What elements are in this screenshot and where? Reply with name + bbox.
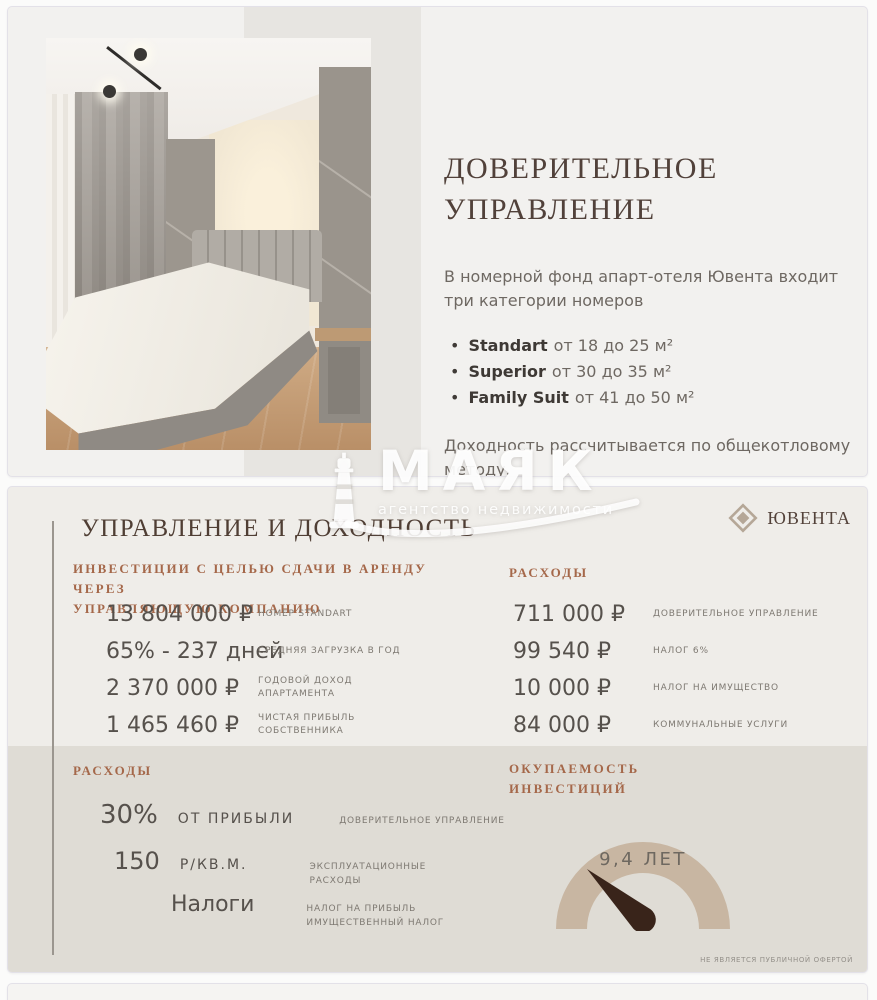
cost-label: ДОВЕРИТЕЛЬНОЕ УПРАВЛЕНИЕ (339, 815, 505, 829)
stat-label: ДОВЕРИТЕЛЬНОЕ УПРАВЛЕНИЕ (653, 608, 819, 621)
stat-row: 84 000 ₽ КОММУНАЛЬНЫЕ УСЛУГИ (513, 710, 863, 740)
vertical-accent-line (52, 521, 54, 955)
stat-row: 1 465 460 ₽ ЧИСТАЯ ПРИБЫЛЬ СОБСТВЕННИКА (106, 710, 496, 740)
stat-label: ГОДОВОЙ ДОХОД АПАРТАМЕНТА (258, 675, 352, 700)
bullet-icon: • (450, 385, 459, 411)
slide1-title: ДОВЕРИТЕЛЬНОЕ УПРАВЛЕНИЕ (444, 148, 856, 231)
cost-unit: ОТ ПРИБЫЛИ (178, 811, 294, 827)
stat-row: 13 804 000 ₽ НОМЕР STANDART (106, 599, 496, 629)
slide1-intro: В номерной фонд апарт-отеля Ювента входи… (444, 265, 856, 313)
list-item: • Superior от 30 до 35 м² (444, 359, 856, 385)
stat-label: НАЛОГ НА ИМУЩЕСТВО (653, 682, 779, 695)
presentation-page: ДОВЕРИТЕЛЬНОЕ УПРАВЛЕНИЕ В номерной фонд… (0, 0, 877, 1000)
cost-value: Налоги (171, 892, 254, 917)
cost-value: 30% (100, 800, 158, 830)
stat-value: 2 370 000 ₽ (106, 676, 258, 701)
stat-value: 84 000 ₽ (513, 713, 653, 738)
bullet-icon: • (450, 359, 459, 385)
expenses-stats: 711 000 ₽ ДОВЕРИТЕЛЬНОЕ УПРАВЛЕНИЕ 99 54… (513, 599, 863, 747)
diamond-icon (728, 503, 758, 533)
stat-row: 10 000 ₽ НАЛОГ НА ИМУЩЕСТВО (513, 673, 863, 703)
payback-section-title: ОКУПАЕМОСТЬ ИНВЕСТИЦИЙ (509, 759, 639, 799)
slide-management-profit: ЮВЕНТА УПРАВЛЕНИЕ И ДОХОДНОСТЬ ИНВЕСТИЦИ… (7, 486, 868, 973)
stat-label: НАЛОГ 6% (653, 645, 709, 658)
photo-desk (319, 328, 371, 423)
room-category-list: • Standart от 18 до 25 м² • Superior от … (444, 333, 856, 411)
costs-section-title: РАСХОДЫ (73, 761, 152, 781)
cost-value: 150 (114, 847, 160, 875)
list-item: • Standart от 18 до 25 м² (444, 333, 856, 359)
stat-value: 10 000 ₽ (513, 676, 653, 701)
invest-stats: 13 804 000 ₽ НОМЕР STANDART 65% - 237 дн… (106, 599, 496, 747)
stat-value: 711 000 ₽ (513, 602, 653, 627)
stat-row: 2 370 000 ₽ ГОДОВОЙ ДОХОД АПАРТАМЕНТА (106, 673, 496, 703)
bedroom-photo (46, 38, 371, 450)
stat-value: 65% - 237 дней (106, 639, 258, 664)
stat-label: НОМЕР STANDART (258, 608, 352, 621)
brand-name: ЮВЕНТА (767, 508, 851, 529)
brand-logo: ЮВЕНТА (728, 503, 851, 533)
stat-row: 65% - 237 дней СРЕДНЯЯ ЗАГРУЗКА В ГОД (106, 636, 496, 666)
cost-row: 30% ОТ ПРИБЫЛИ ДОВЕРИТЕЛЬНОЕ УПРАВЛЕНИЕ (100, 800, 505, 830)
list-item: • Family Suit от 41 до 50 м² (444, 385, 856, 411)
cost-label: ЭКСПЛУАТАЦИОННЫЕ РАСХОДЫ (310, 861, 427, 888)
cost-unit: Р/КВ.М. (180, 857, 248, 873)
cost-row: Налоги НАЛОГ НА ПРИБЫЛЬ ИМУЩЕСТВЕННЫЙ НА… (171, 892, 444, 930)
gauge-needle (587, 869, 656, 931)
cost-row: 150 Р/КВ.М. ЭКСПЛУАТАЦИОННЫЕ РАСХОДЫ (114, 847, 426, 888)
slide-trust-management: ДОВЕРИТЕЛЬНОЕ УПРАВЛЕНИЕ В номерной фонд… (7, 6, 868, 477)
bullet-icon: • (450, 333, 459, 359)
stat-label: ЧИСТАЯ ПРИБЫЛЬ СОБСТВЕННИКА (258, 712, 355, 737)
disclaimer-text: НЕ ЯВЛЯЕТСЯ ПУБЛИЧНОЙ ОФЕРТОЙ (700, 956, 853, 964)
stat-row: 99 540 ₽ НАЛОГ 6% (513, 636, 863, 666)
stat-value: 99 540 ₽ (513, 639, 653, 664)
stat-value: 13 804 000 ₽ (106, 602, 258, 627)
slide2-heading: УПРАВЛЕНИЕ И ДОХОДНОСТЬ (81, 515, 476, 543)
slide1-note: Доходность рассчитывается по общекотлово… (444, 434, 856, 478)
next-slide-edge (7, 983, 868, 1000)
stat-value: 1 465 460 ₽ (106, 713, 258, 738)
gauge-value: 9,4 ЛЕТ (568, 849, 718, 870)
stat-label: СРЕДНЯЯ ЗАГРУЗКА В ГОД (258, 645, 400, 658)
cost-label: НАЛОГ НА ПРИБЫЛЬ ИМУЩЕСТВЕННЫЙ НАЛОГ (306, 903, 444, 930)
stat-row: 711 000 ₽ ДОВЕРИТЕЛЬНОЕ УПРАВЛЕНИЕ (513, 599, 863, 629)
slide1-content: ДОВЕРИТЕЛЬНОЕ УПРАВЛЕНИЕ В номерной фонд… (444, 7, 856, 477)
photo-spotlight (134, 48, 147, 61)
expenses-section-title: РАСХОДЫ (509, 563, 588, 583)
stat-label: КОММУНАЛЬНЫЕ УСЛУГИ (653, 719, 788, 732)
